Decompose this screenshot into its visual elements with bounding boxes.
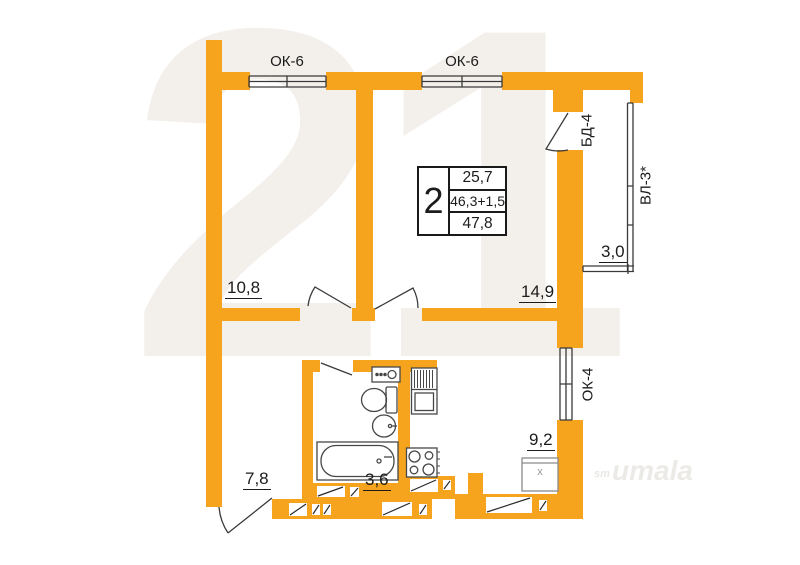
stove-icon <box>407 448 441 477</box>
area-label-living: 14,9 <box>519 282 556 302</box>
area-label-bedroom: 10,8 <box>225 278 262 298</box>
balcony-door-label: БД-4 <box>579 106 596 156</box>
info-living-area: 25,7 <box>450 168 505 189</box>
area-label-balcony: 3,0 <box>599 242 627 262</box>
area-label-hallway: 7,8 <box>243 469 271 489</box>
plan-linework <box>0 0 800 565</box>
info-area-formula: 46,3+1,5 <box>450 189 505 214</box>
window-ok6-right-icon <box>422 76 502 87</box>
toilet-icon <box>362 387 398 413</box>
window-ok4-icon <box>560 348 572 420</box>
area-label-kitchen: 9,2 <box>527 430 555 450</box>
door-living-icon <box>375 288 418 309</box>
area-label-bathroom: 3,6 <box>363 470 391 490</box>
appliance-mark: х <box>533 466 547 478</box>
door-bedroom-icon <box>308 287 351 308</box>
balcony-glazing-label: ВЛ-3* <box>638 161 655 211</box>
floor-plan: 21 sm umala <box>0 0 800 565</box>
duct-hatch-icons <box>289 479 547 516</box>
door-entrance-icon <box>219 498 272 533</box>
info-total-area: 47,8 <box>450 213 505 234</box>
apartment-info-box: 2 25,7 46,3+1,5 47,8 <box>417 166 507 236</box>
bathroom-shelf-icon <box>372 367 400 382</box>
info-room-count: 2 <box>419 168 450 234</box>
washbasin-icon <box>373 415 398 437</box>
window-label-ok6-right: ОК-6 <box>437 53 487 70</box>
window-ok6-left-icon <box>249 76 326 87</box>
kitchen-sink-icon <box>412 368 438 414</box>
door-bathroom-icon <box>321 363 352 375</box>
window-label-ok4: ОК-4 <box>580 360 597 410</box>
window-label-ok6-left: ОК-6 <box>262 53 312 70</box>
door-balcony-icon <box>546 113 568 151</box>
